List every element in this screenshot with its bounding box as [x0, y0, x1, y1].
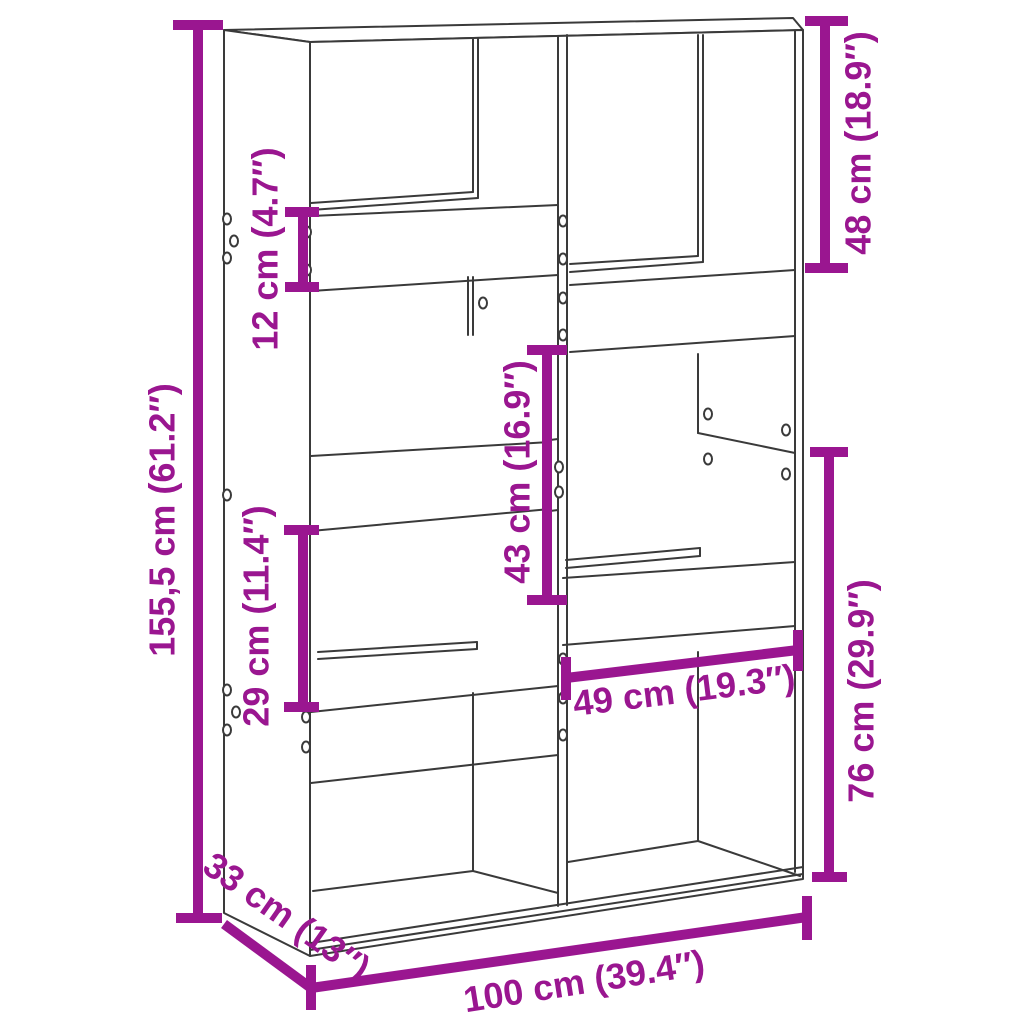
- label-top-right-height: 48 cm (18.9″): [838, 31, 879, 254]
- label-middle-height: 43 cm (16.9″): [497, 360, 538, 583]
- label-lower-right-height: 76 cm (29.9″): [841, 579, 882, 802]
- label-left-opening-height: 29 cm (11.4″): [236, 505, 277, 726]
- dimension-diagram: 155,5 cm (61.2″) 12 cm (4.7″) 48 cm (18.…: [0, 0, 1024, 1024]
- bookcase-drawing: 155,5 cm (61.2″) 12 cm (4.7″) 48 cm (18.…: [0, 0, 1024, 1024]
- label-overall-height: 155,5 cm (61.2″): [142, 383, 183, 656]
- label-board-height: 12 cm (4.7″): [245, 147, 286, 350]
